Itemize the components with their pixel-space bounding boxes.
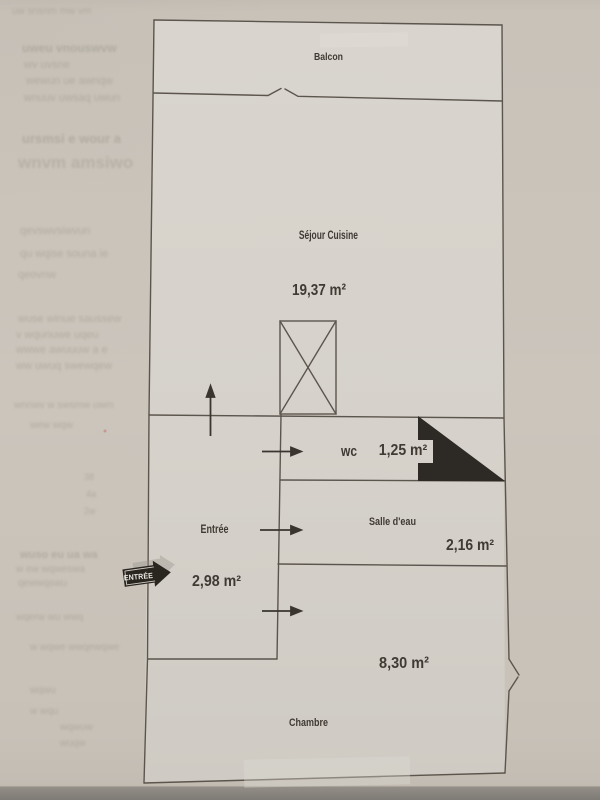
- svg-text:1,25 m²: 1,25 m²: [379, 442, 428, 459]
- svg-text:19,37 m²: 19,37 m²: [292, 282, 346, 299]
- svg-text:Balcon: Balcon: [314, 51, 343, 62]
- svg-text:8,30 m²: 8,30 m²: [379, 654, 429, 672]
- svg-text:uw snsnm mw vm: uw snsnm mw vm: [12, 6, 91, 17]
- svg-text:wc: wc: [340, 443, 357, 460]
- svg-text:uweu vnouswvw: uweu vnouswvw: [22, 41, 117, 55]
- svg-text:2w: 2w: [84, 506, 96, 516]
- svg-text:Séjour Cuisine: Séjour Cuisine: [299, 230, 358, 243]
- svg-text:wqwuw: wqwuw: [59, 722, 94, 733]
- svg-text:2,16 m²: 2,16 m²: [446, 537, 494, 554]
- svg-text:wewun ue awnqw: wewun ue awnqw: [25, 75, 113, 87]
- svg-text:ww uwuq swewqew: ww uwuq swewqew: [15, 360, 112, 372]
- svg-text:wv uvsne: wv uvsne: [23, 59, 70, 71]
- svg-text:w wqu: w wqu: [29, 706, 58, 717]
- svg-text:wqerw wu wwq: wqerw wu wwq: [15, 612, 83, 623]
- svg-text:wwwe awuuuw a e: wwwe awuuuw a e: [15, 344, 108, 356]
- svg-text:qu wqise souna ie: qu wqise souna ie: [20, 248, 108, 260]
- svg-text:qevswvsiwvun: qevswvsiwvun: [20, 225, 90, 237]
- svg-text:wnuuv uwsaq uwun: wnuuv uwsaq uwun: [23, 92, 120, 104]
- svg-text:38: 38: [84, 472, 94, 482]
- svg-text:4a: 4a: [86, 489, 96, 499]
- svg-text:Entrée: Entrée: [201, 524, 229, 536]
- svg-text:wew wqw: wew wqw: [29, 420, 74, 431]
- svg-text:qeovnw: qeovnw: [18, 269, 56, 281]
- svg-text:ursmsi e wour a: ursmsi e wour a: [22, 131, 122, 146]
- svg-text:qewwqswu: qewwqswu: [18, 578, 67, 589]
- svg-text:Chambre: Chambre: [289, 717, 328, 729]
- svg-text:wuqw: wuqw: [59, 738, 86, 749]
- svg-text:2,98 m²: 2,98 m²: [192, 573, 241, 590]
- svg-text:w ew wqweswa: w ew wqweswa: [15, 564, 85, 575]
- svg-text:w wqwe wwqewqwe: w wqwe wwqewqwe: [29, 642, 120, 653]
- svg-text:wnvm amsiwo: wnvm amsiwo: [17, 153, 133, 172]
- svg-text:wnnwv w swsmw uwm: wnnwv w swsmw uwm: [13, 400, 114, 411]
- svg-text:wuso eu ua wa: wuso eu ua wa: [19, 549, 99, 561]
- svg-text:wuse winue saussew: wuse winue saussew: [17, 313, 121, 325]
- svg-text:Salle d'eau: Salle d'eau: [369, 516, 416, 528]
- svg-text:v wqunuwe uqeu: v wqunuwe uqeu: [16, 329, 99, 341]
- svg-text:wqwu: wqwu: [29, 685, 56, 696]
